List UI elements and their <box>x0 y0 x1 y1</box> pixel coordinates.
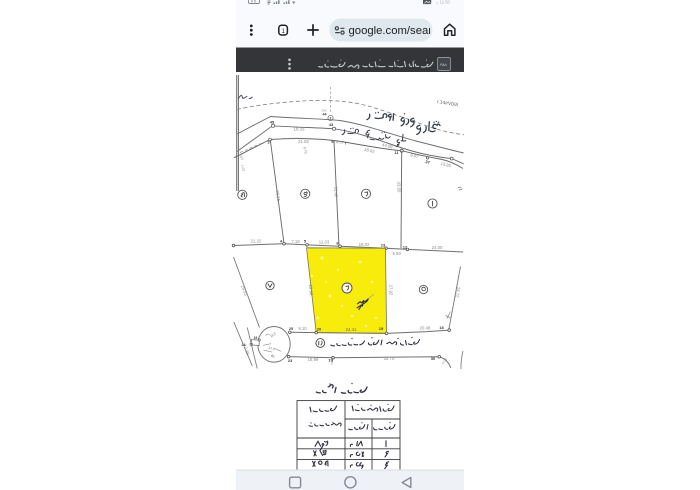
svg-text:31.42: 31.42 <box>333 186 339 198</box>
svg-text:29.98: 29.98 <box>308 284 314 296</box>
svg-text:27.92: 27.92 <box>388 284 394 296</box>
svg-text:18: 18 <box>439 325 444 330</box>
svg-text:19: 19 <box>379 326 384 331</box>
svg-text:21.22: 21.22 <box>251 238 262 243</box>
svg-text:23: 23 <box>381 243 386 248</box>
svg-text:OAI: OAI <box>321 109 326 113</box>
svg-text:4.37: 4.37 <box>336 140 345 145</box>
svg-text:19: 19 <box>328 358 333 363</box>
svg-text:7.18: 7.18 <box>291 239 300 244</box>
svg-text:30: 30 <box>431 356 436 361</box>
svg-text:21.82: 21.82 <box>298 139 309 144</box>
svg-text:45: 45 <box>270 120 275 125</box>
svg-text:24.41: 24.41 <box>346 327 357 332</box>
svg-text:24.00: 24.00 <box>432 245 443 250</box>
svg-text:18.02: 18.02 <box>359 242 370 247</box>
svg-text:33.55: 33.55 <box>396 181 401 193</box>
svg-text:19: 19 <box>254 336 258 340</box>
svg-text:20: 20 <box>317 327 322 332</box>
svg-text:43: 43 <box>329 122 334 127</box>
svg-text:18.99: 18.99 <box>308 357 319 362</box>
svg-text:5.50: 5.50 <box>393 251 402 256</box>
svg-text:12: 12 <box>403 244 408 249</box>
svg-text:google.com/searc: google.com/searc <box>349 25 439 37</box>
svg-text:44: 44 <box>323 113 327 117</box>
svg-text:11.33: 11.33 <box>319 239 330 244</box>
svg-text:9.10: 9.10 <box>298 326 307 331</box>
svg-text:╮ 11:50: ╮ 11:50 <box>435 0 451 5</box>
svg-text:32.70: 32.70 <box>384 356 395 361</box>
svg-text:18.33: 18.33 <box>294 126 306 131</box>
svg-text:23: 23 <box>288 358 293 363</box>
svg-text:25: 25 <box>289 327 293 331</box>
svg-text:20.48: 20.48 <box>420 326 431 331</box>
